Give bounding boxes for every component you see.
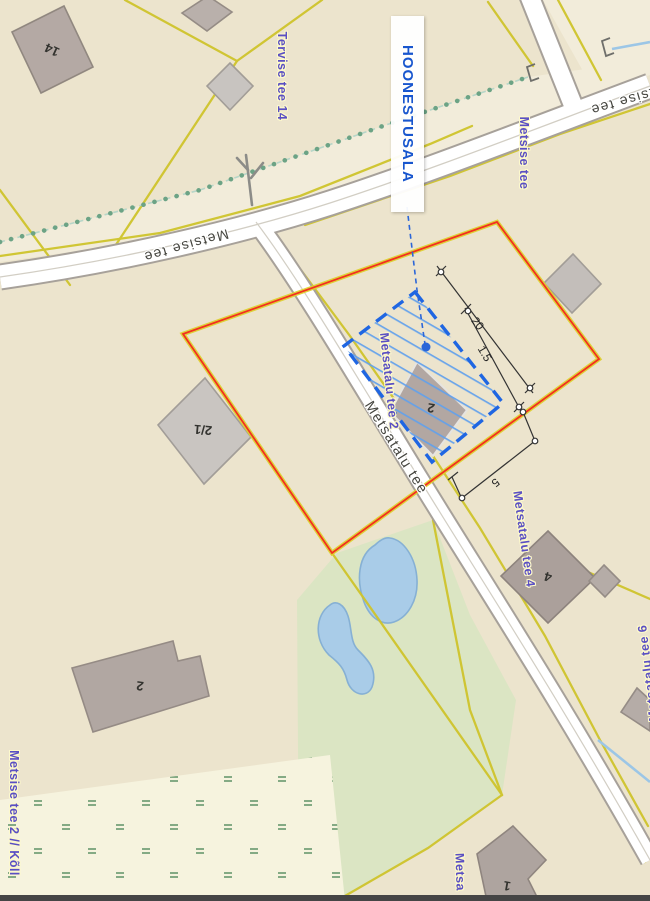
hoonestusala-label: HOONESTUSALA <box>399 45 416 183</box>
map-canvas[interactable]: HOONESTUSALA Metsise tee Metsise tee Met… <box>0 0 650 901</box>
map-graphics <box>0 0 650 901</box>
hoonestusala-label-box: HOONESTUSALA <box>391 16 424 212</box>
window-bottom-edge <box>0 895 650 901</box>
